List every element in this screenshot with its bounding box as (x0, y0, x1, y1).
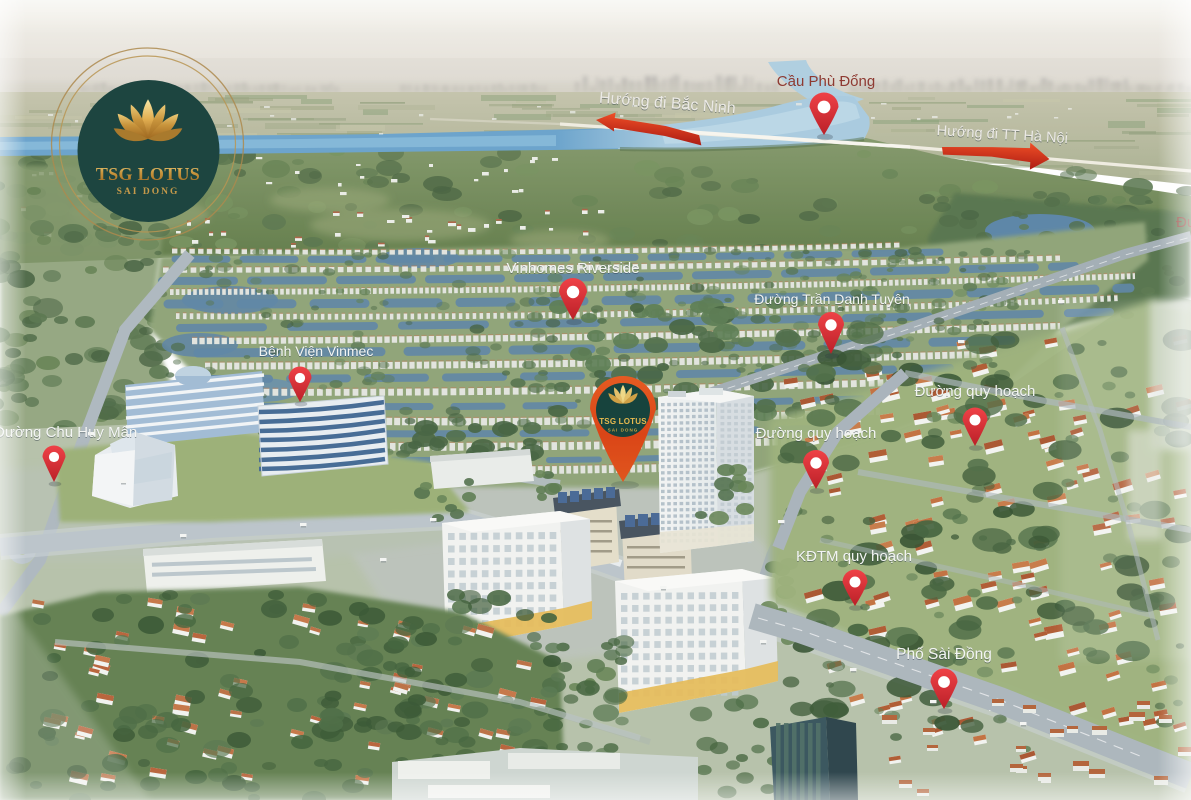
svg-text:Bệnh Viện Vinmec: Bệnh Viện Vinmec (259, 343, 374, 359)
svg-text:Phố Sài Đồng: Phố Sài Đồng (896, 646, 992, 663)
svg-text:KĐTM quy hoạch: KĐTM quy hoạch (796, 548, 912, 565)
svg-text:Đường Trần Danh Tuyên: Đường Trần Danh Tuyên (754, 291, 910, 307)
svg-text:SAI DONG: SAI DONG (117, 187, 180, 197)
svg-text:TSG LOTUS: TSG LOTUS (96, 164, 200, 184)
svg-text:SAI DONG: SAI DONG (608, 428, 639, 433)
svg-text:Cầu Phù Đổng: Cầu Phù Đổng (777, 73, 875, 90)
svg-text:TSG LOTUS: TSG LOTUS (599, 417, 647, 426)
svg-text:Vinhomes Riverside: Vinhomes Riverside (506, 260, 639, 277)
svg-text:Đường quy hoạch: Đường quy hoạch (915, 383, 1036, 400)
svg-text:Đường quy hoạch: Đường quy hoạch (756, 425, 877, 442)
